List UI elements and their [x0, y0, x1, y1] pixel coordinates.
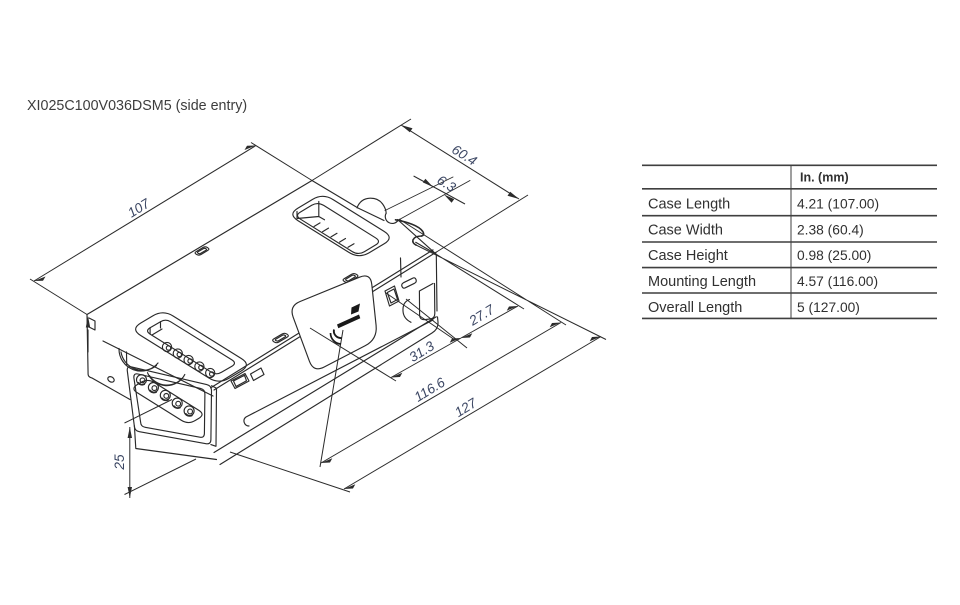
svg-text:2.38 (60.4): 2.38 (60.4) [797, 223, 864, 238]
svg-text:Mounting Length: Mounting Length [648, 274, 756, 290]
svg-text:Case Width: Case Width [648, 223, 723, 239]
svg-text:In. (mm): In. (mm) [800, 171, 849, 185]
svg-text:25: 25 [112, 454, 127, 471]
svg-text:Case Length: Case Length [648, 197, 730, 213]
svg-text:Case Height: Case Height [648, 248, 728, 264]
svg-text:4.57 (116.00): 4.57 (116.00) [797, 274, 878, 289]
svg-text:5 (127.00): 5 (127.00) [797, 300, 860, 315]
svg-text:XI025C100V036DSM5 (side entry): XI025C100V036DSM5 (side entry) [27, 98, 247, 114]
svg-text:Overall Length: Overall Length [648, 300, 742, 316]
svg-text:0.98 (25.00): 0.98 (25.00) [797, 248, 871, 263]
svg-text:4.21 (107.00): 4.21 (107.00) [797, 197, 879, 212]
